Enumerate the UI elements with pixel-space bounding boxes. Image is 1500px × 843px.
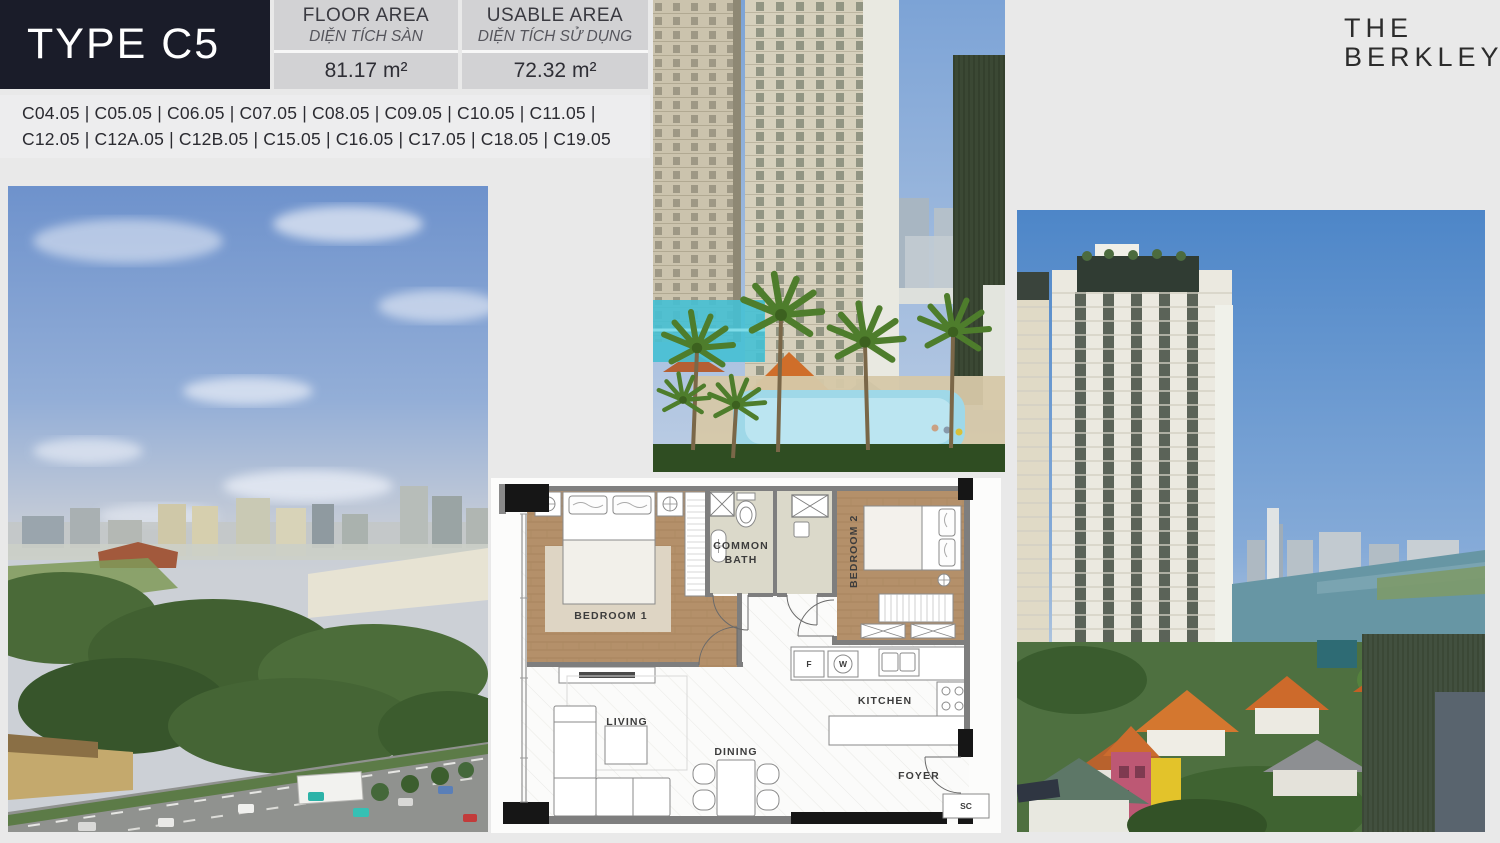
- bedroom1-label: BEDROOM 1: [574, 610, 648, 622]
- foyer-label: FOYER: [898, 770, 940, 782]
- kitchen-label: KITCHEN: [858, 695, 912, 707]
- brand-line1: THE: [1344, 14, 1500, 43]
- houses-band: [1017, 634, 1485, 832]
- tv-console: [559, 667, 655, 683]
- fridge-label: F: [806, 659, 811, 669]
- living-label: LIVING: [606, 716, 648, 728]
- usable-area-panel: USABLE AREA DIỆN TÍCH SỬ DỤNG 72.32 m²: [462, 0, 648, 89]
- unit-list-line2: C12.05 | C12A.05 | C12B.05 | C15.05 | C1…: [22, 129, 650, 150]
- usable-area-label-vi: DIỆN TÍCH SỬ DỤNG: [478, 28, 632, 46]
- bedroom2-lamp: [938, 574, 950, 586]
- bedroom2-label: BEDROOM 2: [848, 515, 860, 589]
- pool-inner: [745, 398, 953, 444]
- bedroom1-bed: [563, 492, 655, 604]
- coffee-table: [605, 726, 647, 764]
- bath-label-line1: COMMON: [713, 540, 769, 552]
- usable-area-value: 72.32 m²: [462, 53, 648, 89]
- tower-left: [653, 0, 741, 342]
- usable-area-header: USABLE AREA DIỆN TÍCH SỬ DỤNG: [462, 0, 648, 53]
- bath-label-line2: BATH: [725, 554, 758, 566]
- floor-area-label-vi: DIỆN TÍCH SÀN: [309, 28, 423, 46]
- bedroom2-bed: [864, 506, 961, 570]
- bedroom2-closet: [879, 594, 953, 622]
- billboard: [297, 772, 363, 804]
- toilet: [736, 493, 756, 527]
- sc-label: SC: [960, 801, 972, 811]
- floor-area-value: 81.17 m²: [274, 53, 458, 89]
- photo-tower-river: [1017, 210, 1485, 832]
- hedge: [653, 444, 1005, 472]
- brochure-page: TYPE C5 FLOOR AREA DIỆN TÍCH SÀN 81.17 m…: [0, 0, 1500, 843]
- photo-tower-river-art: [1017, 210, 1485, 832]
- floor-area-header: FLOOR AREA DIỆN TÍCH SÀN: [274, 0, 458, 53]
- kitchen-counter: [791, 647, 969, 680]
- floor-area-panel: FLOOR AREA DIỆN TÍCH SÀN 81.17 m²: [274, 0, 458, 89]
- floor-plan: SC BEDROOM 1 COMMON BATH BEDROOM 2 KITCH…: [491, 478, 1001, 833]
- usable-area-label-en: USABLE AREA: [487, 5, 623, 27]
- photo-city-skyline-art: [8, 186, 488, 832]
- dining-label: DINING: [714, 746, 757, 758]
- photo-city-skyline: [8, 186, 488, 832]
- photo-pool-courtyard: [653, 0, 1005, 472]
- washer-label: W: [839, 659, 848, 669]
- shoe-cabinet: SC: [943, 794, 989, 818]
- page-title: TYPE C5: [27, 20, 220, 69]
- brand-logo: THE BERKLEY: [1344, 14, 1500, 72]
- floor-area-label-en: FLOOR AREA: [303, 5, 429, 27]
- unit-list-line1: C04.05 | C05.05 | C06.05 | C07.05 | C08.…: [22, 103, 650, 124]
- type-title-block: TYPE C5: [0, 0, 270, 89]
- stove: [937, 682, 967, 716]
- floor-plan-drawing: SC BEDROOM 1 COMMON BATH BEDROOM 2 KITCH…: [491, 478, 1001, 833]
- brand-line2: BERKLEY: [1344, 43, 1500, 72]
- wet-room-basin: [794, 522, 809, 537]
- kitchen-island: [829, 716, 969, 745]
- unit-list: C04.05 | C05.05 | C06.05 | C07.05 | C08.…: [0, 95, 650, 158]
- photo-pool-courtyard-art: [653, 0, 1005, 472]
- tower-left-edge: [733, 0, 741, 342]
